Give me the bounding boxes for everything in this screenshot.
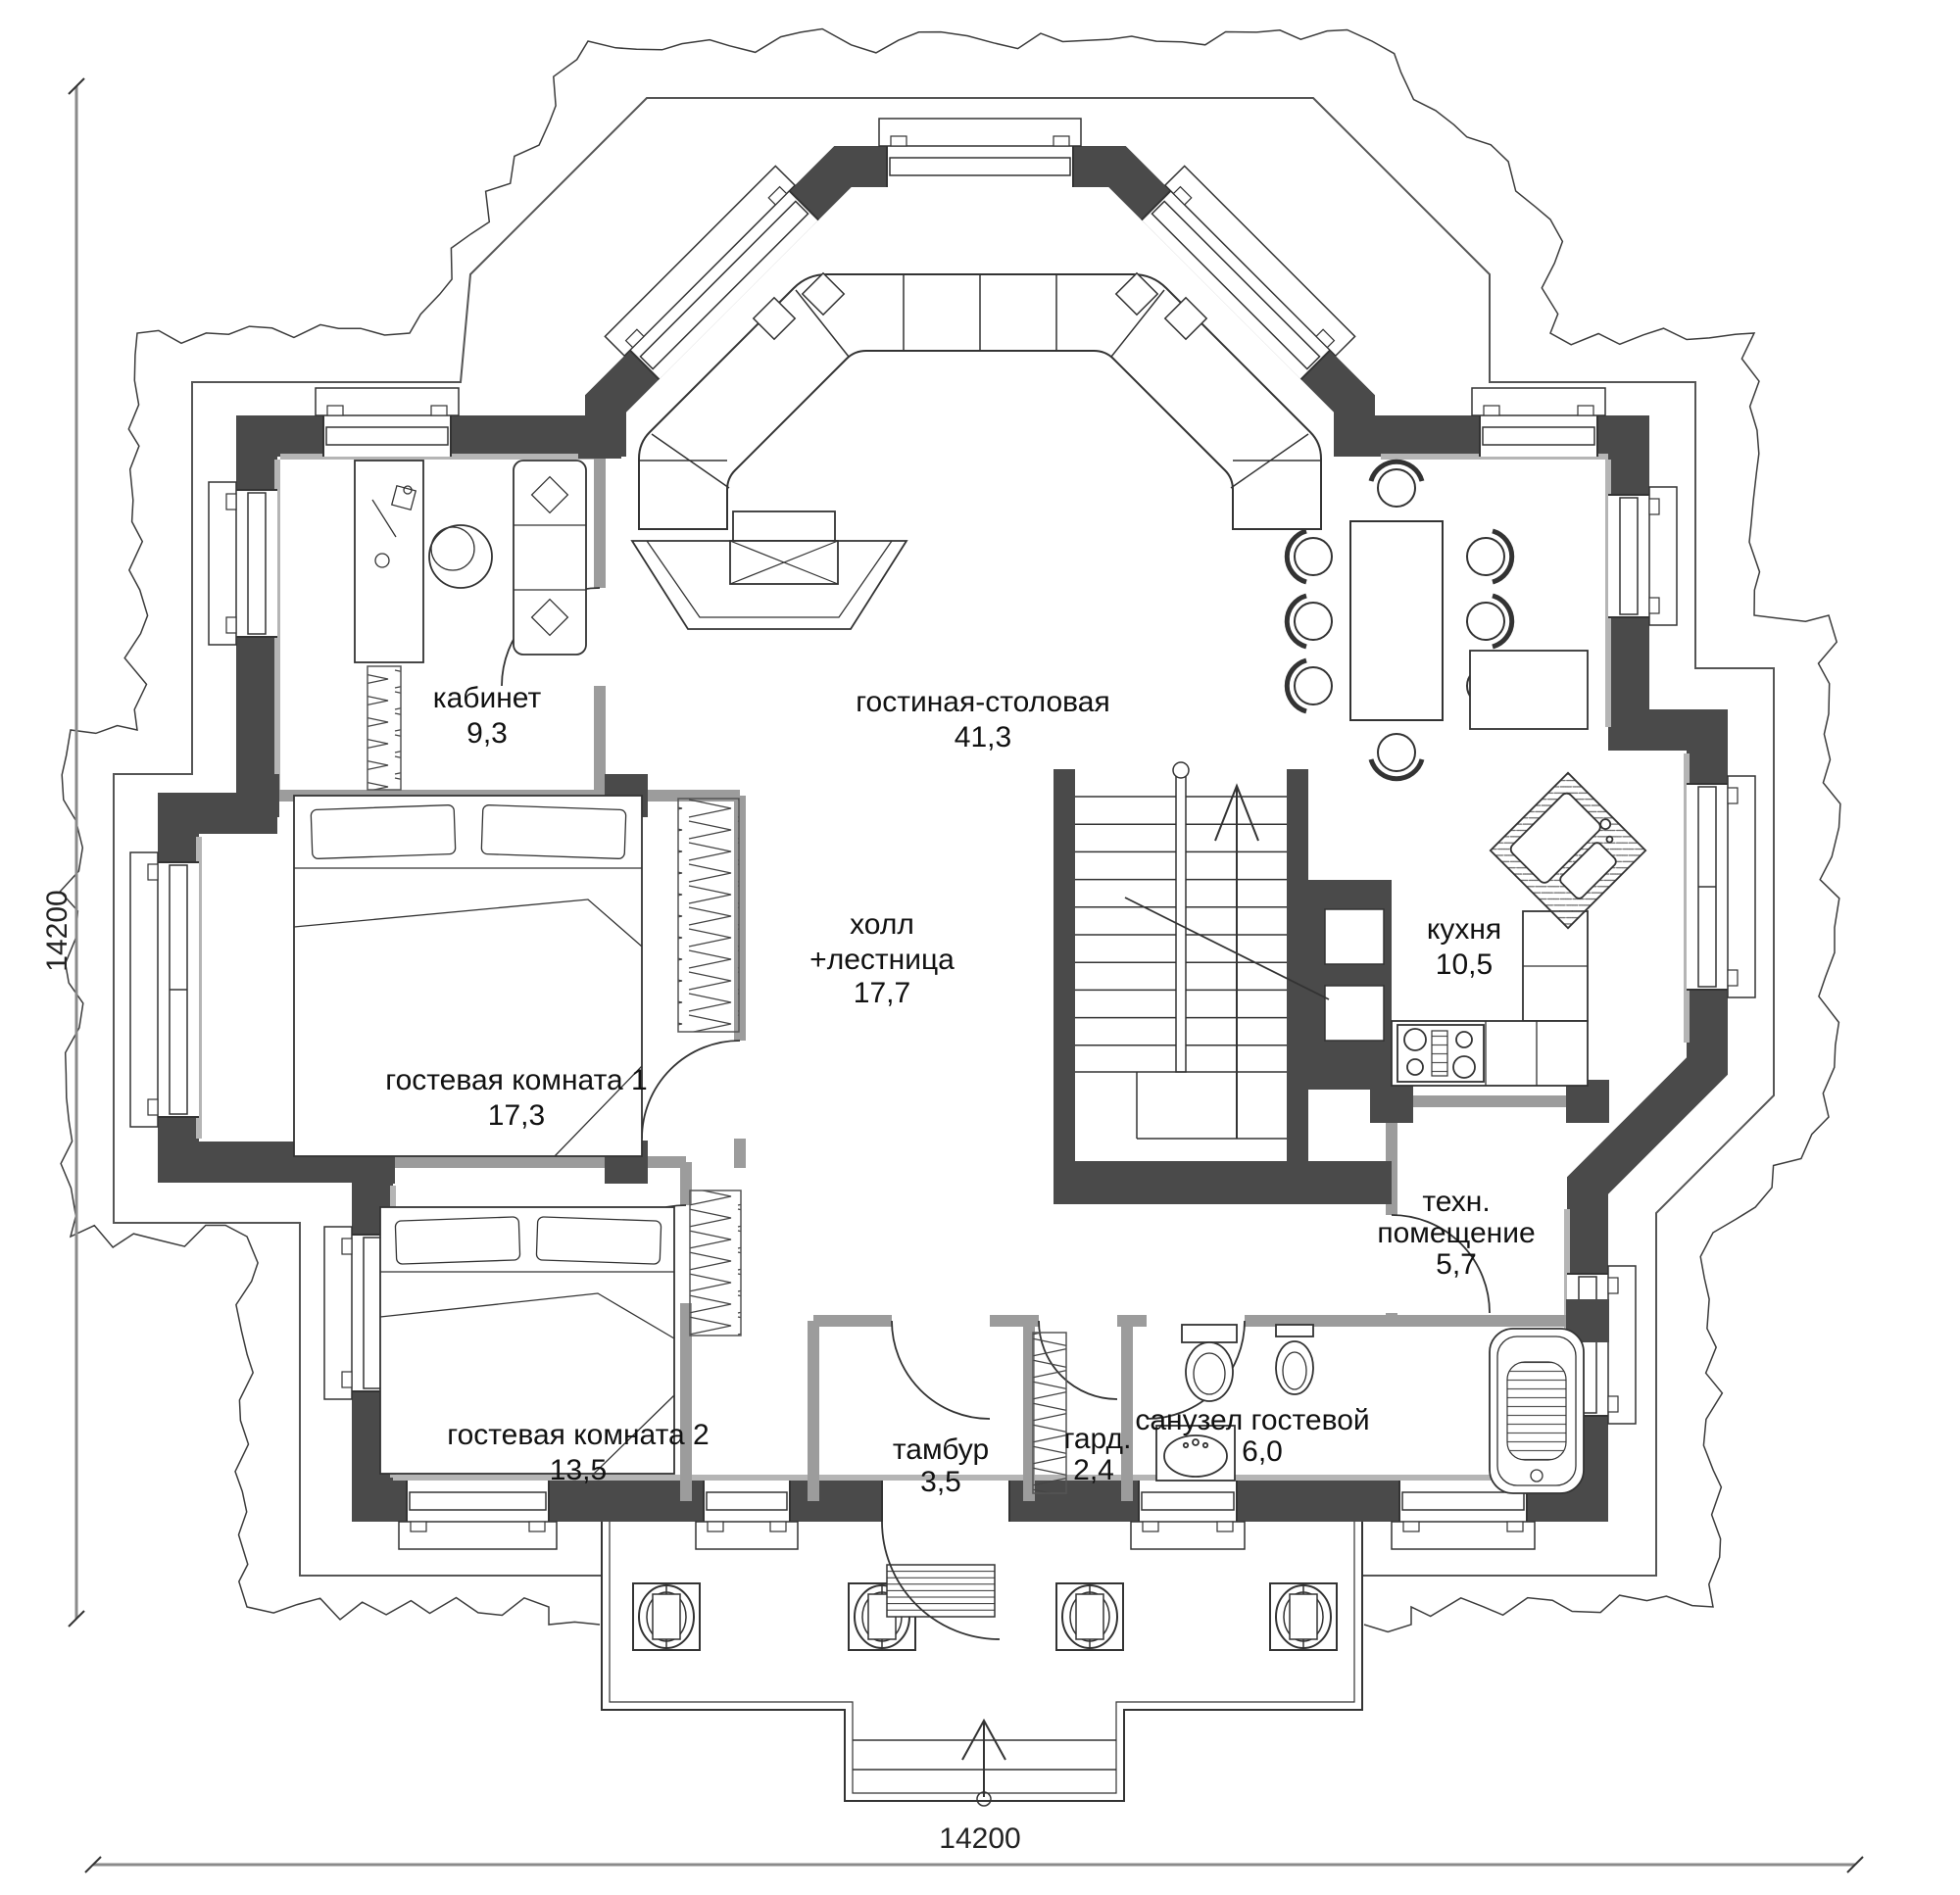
floor-plan-page: 14200 14200 кабинет 9,3 гостиная-столова… bbox=[0, 0, 1960, 1895]
room-label-guest2: гостевая комната 2 bbox=[447, 1419, 709, 1451]
window bbox=[879, 119, 1081, 187]
window bbox=[1131, 1481, 1245, 1549]
pillow bbox=[311, 804, 456, 858]
room-label-guest1: гостевая комната 1 bbox=[385, 1064, 647, 1096]
hall-closet bbox=[690, 1190, 741, 1336]
window bbox=[696, 1481, 798, 1549]
room-label-hall-2: +лестница bbox=[809, 944, 955, 976]
window bbox=[209, 482, 277, 645]
dining-chair bbox=[1371, 462, 1422, 507]
room-area-tambour: 3,5 bbox=[920, 1466, 961, 1498]
bathtub bbox=[1490, 1329, 1584, 1493]
room-area-wardrobe: 2,4 bbox=[1073, 1454, 1114, 1486]
pillow bbox=[536, 1217, 661, 1264]
guest1-bed bbox=[294, 796, 642, 1156]
staircase bbox=[1053, 762, 1392, 1204]
room-label-tech-2: помещение bbox=[1377, 1217, 1535, 1249]
office-closet bbox=[367, 666, 401, 790]
window bbox=[1608, 487, 1677, 625]
dining-chair bbox=[1467, 596, 1512, 647]
room-area-guest1: 17,3 bbox=[488, 1099, 545, 1132]
window-sill bbox=[130, 852, 158, 1127]
porch-column bbox=[633, 1583, 700, 1650]
toilet bbox=[1182, 1325, 1237, 1401]
pillow bbox=[481, 804, 626, 858]
dining-chair bbox=[1287, 660, 1332, 711]
gard-closet bbox=[1033, 1333, 1066, 1493]
room-label-bathroom: санузел гостевой bbox=[1135, 1404, 1369, 1436]
pillow bbox=[395, 1217, 519, 1264]
dining-chair bbox=[1287, 596, 1332, 647]
porch-column bbox=[1270, 1583, 1337, 1650]
kitchen-cabinet bbox=[1470, 651, 1588, 729]
porch-column bbox=[1056, 1583, 1123, 1650]
room-area-kitchen: 10,5 bbox=[1436, 948, 1493, 981]
dining-chair bbox=[1467, 531, 1512, 582]
floor-plan-canvas: 14200 14200 кабинет 9,3 гостиная-столова… bbox=[0, 0, 1960, 1895]
bidet bbox=[1276, 1325, 1313, 1394]
room-label-wardrobe: гард. bbox=[1064, 1423, 1132, 1455]
wall-niche bbox=[1325, 909, 1384, 964]
dining-table bbox=[1350, 521, 1443, 720]
room-label-hall-1: холл bbox=[850, 908, 914, 941]
window bbox=[316, 388, 459, 457]
room-label-living: гостиная-столовая bbox=[856, 686, 1109, 718]
desk-chair bbox=[429, 525, 492, 588]
room-area-guest2: 13,5 bbox=[550, 1454, 607, 1486]
wall-niche bbox=[1325, 986, 1384, 1041]
window-sill bbox=[1728, 776, 1755, 997]
corner-sink bbox=[1491, 773, 1645, 928]
sectional-sofa bbox=[639, 273, 1321, 529]
dimension-bottom: 14200 bbox=[939, 1822, 1020, 1855]
room-area-tech: 5,7 bbox=[1436, 1248, 1477, 1281]
room-area-hall: 17,7 bbox=[854, 977, 910, 1009]
room-area-living: 41,3 bbox=[955, 721, 1011, 753]
office-furniture bbox=[355, 461, 586, 662]
stove bbox=[1397, 1025, 1484, 1082]
tambour-door-swing bbox=[892, 1321, 990, 1419]
guest1-door-swing bbox=[642, 1041, 740, 1139]
stair-rail bbox=[1176, 772, 1186, 1072]
window bbox=[1472, 388, 1605, 457]
window-sill bbox=[879, 119, 1081, 146]
window bbox=[1687, 776, 1755, 997]
room-area-bathroom: 6,0 bbox=[1242, 1435, 1283, 1468]
dimension-left: 14200 bbox=[41, 890, 73, 971]
guest1-closet bbox=[678, 799, 739, 1032]
room-label-tech-1: техн. bbox=[1422, 1186, 1490, 1218]
room-label-kitchen: кухня bbox=[1427, 913, 1501, 946]
room-label-office: кабинет bbox=[433, 682, 542, 714]
room-area-office: 9,3 bbox=[466, 717, 508, 750]
window bbox=[130, 852, 199, 1127]
window bbox=[399, 1481, 557, 1549]
room-label-tambour: тамбур bbox=[893, 1433, 989, 1466]
dining-chair bbox=[1287, 531, 1332, 582]
dining-chair bbox=[1371, 734, 1422, 779]
